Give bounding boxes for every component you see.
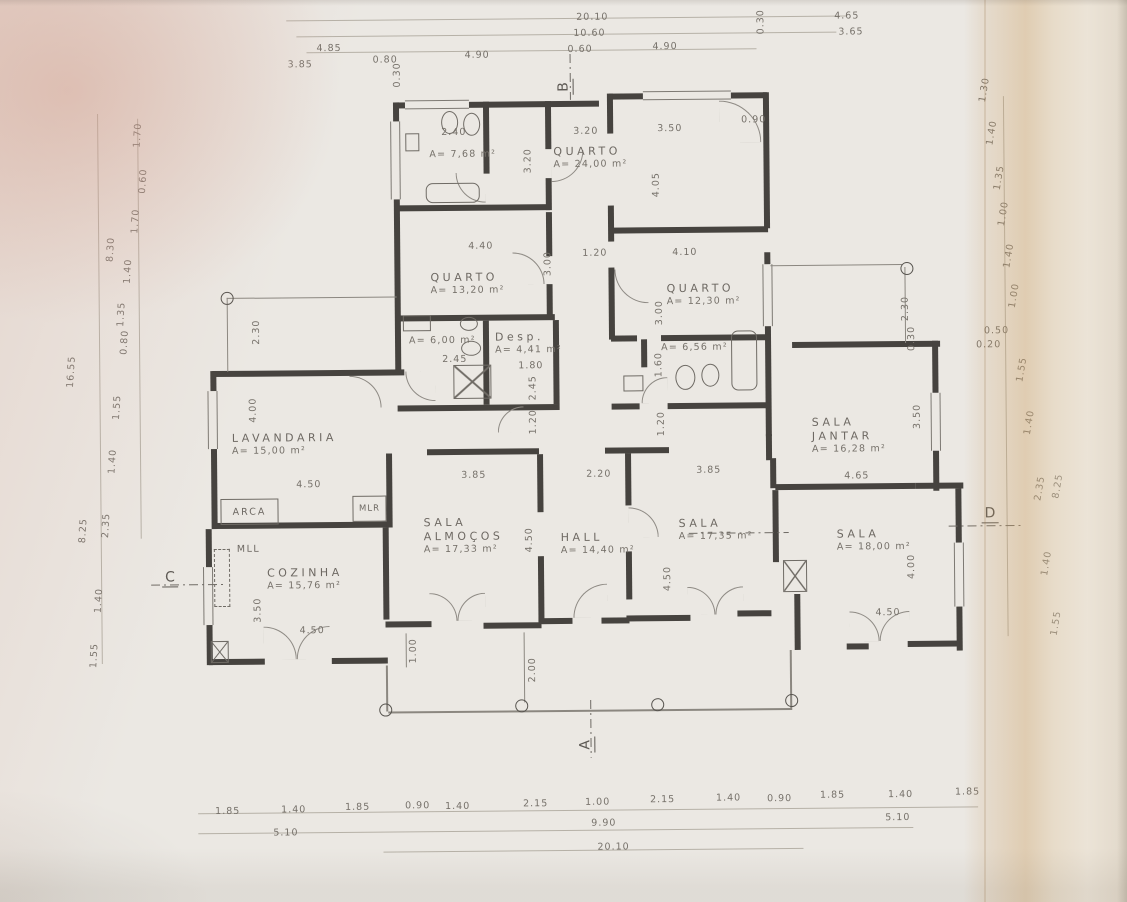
door-arc [687, 587, 715, 615]
dimension-line [383, 848, 803, 853]
column [379, 704, 392, 717]
room-label: A= 6,56 m² [661, 342, 728, 354]
dimension-label: 1.00 [996, 200, 1011, 227]
room-name: Desp. [495, 330, 562, 344]
dimension-label: 0.90 [767, 793, 792, 804]
room-label: Desp. A= 4,41 m² [495, 330, 562, 356]
sink-icon [623, 375, 643, 391]
wall [608, 206, 614, 242]
dimension-label: 4.50 [662, 566, 673, 591]
room-label: SALA A= 17,35 m² [679, 516, 753, 542]
wall [538, 556, 545, 622]
bathtub-icon [426, 183, 480, 203]
wall [847, 643, 869, 649]
dimension-label: 1.20 [528, 409, 539, 434]
dimension-label: 0.20 [976, 339, 1001, 350]
dimension-label: 0.30 [906, 326, 917, 351]
room-area: A= 4,41 m² [495, 344, 562, 356]
dimension-label: 1.80 [518, 360, 543, 371]
room-label: A= 7,68 m² [429, 149, 496, 161]
dimension-label: 4.90 [464, 50, 489, 61]
wall [612, 226, 768, 233]
dimension-label: 1.35 [115, 301, 128, 327]
room-label: SALA A= 18,00 m² [837, 527, 911, 553]
room-area: A= 17,35 m² [679, 530, 753, 542]
window [762, 264, 773, 326]
photo-edge [1117, 0, 1127, 902]
appliance-icon [214, 549, 231, 607]
room-label: HALL A= 14,40 m² [561, 530, 635, 556]
dimension-label: 1.85 [820, 790, 845, 801]
scanned-floorplan-photo: ARCA MLR MLL QUARTO A= 24,00 m² QUARTO A… [0, 0, 1127, 902]
column [651, 698, 664, 711]
wall [212, 369, 404, 377]
door-arc [512, 252, 544, 284]
dimension-line [198, 827, 913, 834]
room-label: COZINHA A= 15,76 m² [267, 566, 343, 592]
door-arc [641, 377, 667, 403]
dimension-label: 5.10 [885, 812, 910, 823]
dimension-label: 0.90 [405, 800, 430, 811]
column [785, 694, 798, 707]
room-name: QUARTO [667, 281, 741, 295]
door-arc [264, 626, 297, 659]
room-name: HALL [561, 530, 635, 544]
room-name: SALA [812, 415, 886, 429]
room-name: SALA [837, 527, 911, 541]
arca-cabinet-label: ARCA [220, 498, 278, 525]
dimension-label: 3.50 [912, 404, 923, 429]
door-arc [614, 269, 648, 303]
room-label: QUARTO A= 12,30 m² [667, 281, 741, 307]
dimension-label: 1.00 [408, 638, 419, 663]
dimension-label: 1.40 [984, 119, 999, 146]
shower-icon [453, 365, 491, 399]
room-area: A= 7,68 m² [429, 149, 496, 161]
dimension-label: 1.40 [1039, 550, 1054, 577]
room-area: A= 12,30 m² [667, 295, 741, 307]
dimension-label: 2.40 [441, 127, 466, 138]
dimension-label: 2.15 [650, 794, 675, 805]
dimension-label: 4.90 [652, 41, 677, 52]
room-name: COZINHA [267, 566, 343, 580]
dimension-label: 3.85 [288, 59, 313, 70]
room-area: A= 24,00 m² [553, 158, 627, 170]
outline-line [227, 298, 229, 372]
dimension-label: 9.90 [591, 818, 616, 829]
dimension-label: 8.25 [77, 518, 90, 544]
dimension-label: 1.70 [132, 122, 145, 148]
toilet-icon [460, 317, 478, 331]
wall [612, 403, 640, 409]
floor-plan: ARCA MLR MLL QUARTO A= 24,00 m² QUARTO A… [0, 0, 1127, 902]
wall [611, 335, 637, 341]
dimension-label: 3.85 [461, 470, 486, 481]
door-arc [715, 586, 743, 614]
dimension-label: 4.10 [672, 247, 697, 258]
wall [483, 622, 541, 629]
room-label: LAVANDARIA A= 15,00 m² [232, 431, 337, 457]
wall [385, 621, 431, 627]
dimension-line [307, 48, 757, 53]
door-arc [457, 593, 485, 621]
wall [772, 490, 779, 562]
dimension-label: 8.30 [105, 237, 118, 263]
room-label: A= 6,00 m² [409, 335, 476, 347]
hatch-icon [211, 641, 229, 663]
wall [332, 658, 388, 664]
wall [908, 641, 960, 647]
wall [601, 617, 629, 623]
window [954, 543, 965, 607]
dimension-label: 1.40 [106, 449, 119, 475]
dimension-label: 1.20 [656, 411, 667, 436]
dimension-label: 4.50 [524, 527, 535, 552]
window [643, 91, 731, 101]
outline-line [227, 296, 397, 298]
column [515, 699, 528, 712]
dimension-label: 16.55 [65, 355, 78, 388]
bidet-icon [701, 364, 719, 387]
photo-edge [0, 0, 1127, 6]
dimension-label: 1.40 [122, 258, 135, 284]
dimension-label: 4.50 [300, 625, 325, 636]
wall [383, 528, 390, 620]
wall [537, 454, 544, 512]
dimension-label: 4.65 [834, 10, 859, 21]
wall [668, 402, 770, 409]
outline-line [406, 633, 407, 667]
wall [626, 615, 690, 622]
room-label: SALA JANTAR A= 16,28 m² [812, 415, 886, 455]
dimension-label: 1.55 [1049, 610, 1064, 637]
dimension-label: 1.85 [955, 786, 980, 797]
wall [794, 594, 800, 650]
wall [427, 448, 539, 455]
dimension-label: 1.85 [345, 802, 370, 813]
dimension-label: 0.50 [984, 325, 1009, 336]
mll-appliance-label: MLL [237, 544, 260, 555]
room-label: QUARTO A= 13,20 m² [430, 271, 504, 297]
room-name: QUARTO [553, 144, 627, 158]
wall [625, 453, 631, 505]
dimension-label: 20.10 [597, 841, 629, 852]
dimension-label: 4.40 [468, 241, 493, 252]
room-area: A= 6,00 m² [409, 335, 476, 347]
room-label: SALA ALMOÇOS A= 17,33 m² [424, 516, 504, 556]
dimension-label: 3.50 [657, 123, 682, 134]
wall [386, 453, 393, 527]
section-marker: B [556, 79, 574, 95]
door-arc [573, 584, 607, 618]
wall [641, 339, 647, 367]
bathtub-icon [731, 330, 758, 390]
dimension-label: 4.50 [875, 607, 900, 618]
dimension-label: 3.65 [838, 26, 863, 37]
dimension-label: 2.30 [251, 320, 262, 345]
dimension-label: 1.55 [88, 643, 101, 669]
wall [763, 92, 770, 228]
room-name: LAVANDARIA [232, 431, 337, 445]
window [207, 391, 218, 449]
room-area: A= 17,33 m² [424, 544, 504, 556]
wall [792, 341, 940, 348]
dimension-label: 8.25 [1050, 473, 1065, 500]
sink-icon [403, 315, 431, 331]
wall [766, 434, 772, 460]
dimension-label: 0.90 [741, 114, 766, 125]
dimension-label: 1.40 [1022, 409, 1037, 436]
room-area: A= 18,00 m² [837, 541, 911, 553]
dimension-label: 3.85 [696, 465, 721, 476]
sink-icon [405, 133, 419, 151]
dimension-label: 2.35 [1032, 475, 1047, 502]
paper-fold-line [984, 0, 986, 902]
wall [545, 101, 551, 149]
dimension-label: 4.85 [316, 43, 341, 54]
column [900, 262, 913, 275]
dimension-label: 2.15 [523, 798, 548, 809]
room-label: QUARTO A= 24,00 m² [553, 144, 627, 170]
dimension-label: 5.10 [273, 827, 298, 838]
dimension-label: 1.40 [281, 804, 306, 815]
dimension-label: 0.30 [755, 9, 766, 34]
dimension-label: 0.80 [118, 329, 131, 355]
window [203, 567, 214, 625]
door-arc [405, 371, 435, 401]
toilet-icon [675, 365, 695, 390]
dimension-label: 2.00 [527, 657, 538, 682]
door-arc [349, 376, 381, 408]
section-marker: A [577, 737, 595, 753]
dimension-label: 2.45 [527, 375, 538, 400]
dimension-label: 4.00 [906, 554, 917, 579]
dimension-label: 4.00 [248, 398, 259, 423]
outline-line [524, 632, 526, 702]
dimension-label: 0.60 [137, 168, 150, 194]
section-marker: C [162, 569, 178, 587]
wall [605, 447, 669, 454]
dimension-line [97, 114, 103, 664]
dimension-label: 1.20 [582, 248, 607, 259]
wall [547, 284, 553, 318]
dimension-label: 1.00 [585, 797, 610, 808]
room-area: A= 16,28 m² [812, 443, 886, 455]
dimension-label: 1.70 [129, 208, 142, 234]
dimension-label: 3.00 [542, 251, 553, 276]
column [221, 292, 234, 305]
dimension-label: 1.00 [1007, 282, 1022, 309]
dimension-label: 2.20 [586, 469, 611, 480]
room-name: QUARTO [430, 271, 504, 285]
dimension-label: 10.60 [573, 28, 605, 39]
room-name-2: JANTAR [812, 429, 886, 443]
room-area: A= 14,40 m² [561, 544, 635, 556]
wall [607, 94, 613, 134]
dimension-label: 1.55 [111, 395, 124, 421]
dimension-label: 2.30 [900, 296, 911, 321]
room-name: SALA [424, 516, 504, 530]
dimension-label: 1.40 [716, 792, 741, 803]
wall [398, 204, 550, 211]
door-arc [429, 593, 457, 621]
window [405, 100, 469, 110]
dimension-label: 3.50 [252, 598, 263, 623]
room-area: A= 15,76 m² [267, 580, 343, 592]
dimension-label: 1.55 [1014, 356, 1029, 383]
room-area: A= 13,20 m² [431, 285, 505, 297]
dimension-label: 1.40 [445, 801, 470, 812]
wall [546, 178, 552, 210]
wall [775, 483, 915, 490]
dimension-label: 4.05 [651, 172, 662, 197]
dimension-label: 0.60 [567, 44, 592, 55]
room-name: SALA [679, 516, 753, 530]
dimension-label: 3.20 [573, 126, 598, 137]
dimension-label: 4.50 [296, 479, 321, 490]
dimension-label: 3.20 [522, 148, 533, 173]
dimension-label: 1.85 [215, 806, 240, 817]
window [390, 121, 401, 199]
wall [483, 102, 490, 174]
wall [626, 551, 632, 599]
dimension-label: 1.40 [888, 789, 913, 800]
dimension-label: 2.35 [100, 513, 113, 539]
wall [538, 618, 572, 624]
wall [608, 268, 615, 340]
outline-line [770, 264, 902, 266]
dimension-label: 1.60 [653, 352, 664, 377]
wall [546, 212, 552, 256]
dimension-label: 4.65 [844, 470, 869, 481]
dimension-label: 20.10 [576, 12, 608, 23]
room-area: A= 15,00 m² [232, 445, 337, 457]
room-name-2: ALMOÇOS [424, 530, 504, 544]
dimension-label: 3.00 [654, 300, 665, 325]
dimension-label: 2.45 [442, 354, 467, 365]
fireplace-icon [783, 560, 807, 592]
dimension-label: 0.30 [392, 62, 403, 87]
room-area: A= 6,56 m² [661, 342, 728, 354]
window [931, 393, 942, 451]
mlr-appliance-label: MLR [352, 496, 386, 522]
dimension-label: 1.40 [93, 588, 106, 614]
